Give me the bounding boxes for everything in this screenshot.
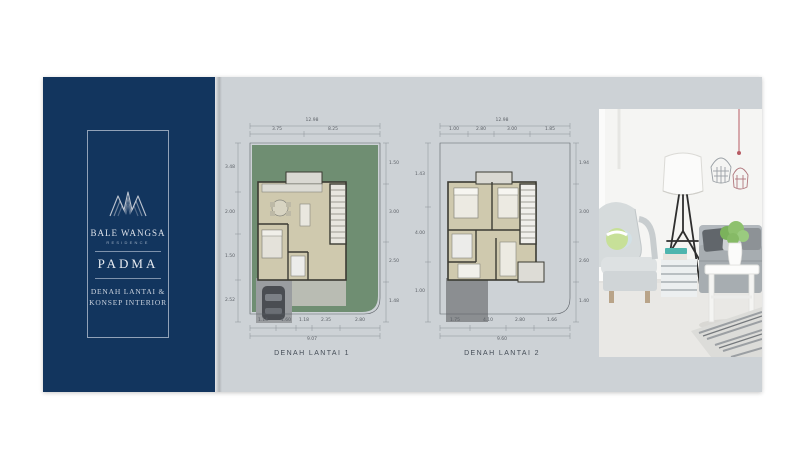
floor-plan-1-title: DENAH LANTAI 1 — [228, 350, 396, 357]
floor-plan-2-title: DENAH LANTAI 2 — [418, 350, 586, 357]
dimension-label: 1.40 — [579, 300, 593, 305]
crown-monogram-icon — [105, 189, 151, 224]
dimension-label: 1.43 — [412, 173, 425, 178]
brochure-card: BALE WANGSA RESIDENCE PADMA DENAH LANTAI… — [43, 77, 762, 392]
dimension-label: 1.75 — [445, 319, 465, 324]
dimension-label: 9.60 — [418, 338, 586, 343]
tagline-line2: KONSEP INTERIOR — [89, 298, 167, 307]
dimension-label: 2.80 — [350, 319, 370, 324]
fold-crease — [215, 77, 222, 392]
floor-plan-1: 12.98 3.75 8.25 3.48 2.00 1.50 2.52 1.50… — [228, 112, 396, 362]
dimension-label: 12.98 — [418, 119, 586, 124]
floor-plan-1-drawing — [228, 112, 396, 362]
dimension-label: 1.50 — [222, 255, 235, 260]
dimension-label: 4.10 — [478, 319, 498, 324]
dimension-label: 1.94 — [579, 162, 593, 167]
brand-frame: BALE WANGSA RESIDENCE PADMA DENAH LANTAI… — [87, 130, 169, 338]
brand-name: BALE WANGSA — [90, 228, 165, 238]
dimension-label: 1.14 — [253, 319, 273, 324]
dimension-label: 3.00 — [579, 211, 593, 216]
interior-concept-photo — [599, 109, 762, 357]
divider-line — [95, 278, 161, 279]
product-name: PADMA — [98, 256, 159, 272]
dimension-label: 2.60 — [579, 260, 593, 265]
dimension-label: 3.00 — [502, 128, 522, 133]
dimension-label: 2.00 — [222, 211, 235, 216]
dimension-label: 1.50 — [389, 162, 403, 167]
dimension-label: 4.00 — [412, 232, 425, 237]
dimension-label: 2.80 — [510, 319, 530, 324]
dimension-label: 2.52 — [222, 299, 235, 304]
dimension-label: 2.80 — [471, 128, 491, 133]
dimension-label: 1.00 — [444, 128, 464, 133]
dimension-label: 1.85 — [540, 128, 560, 133]
divider-line — [95, 251, 161, 252]
dimension-label: 8.25 — [313, 128, 353, 133]
dimension-label: 1.00 — [412, 290, 425, 295]
floor-plan-2: 12.98 1.00 2.80 3.00 1.85 1.43 4.00 1.00… — [418, 112, 586, 362]
dimension-label: 9.07 — [228, 338, 396, 343]
dimension-label: 3.48 — [222, 166, 235, 171]
dimension-label: 2.50 — [389, 260, 403, 265]
tagline-line1: DENAH LANTAI & — [91, 287, 165, 296]
dimension-label: 1.66 — [542, 319, 562, 324]
dimension-label: 2.35 — [316, 319, 336, 324]
dimension-label: 1.48 — [389, 300, 403, 305]
brand-subtitle: RESIDENCE — [106, 240, 149, 245]
brand-panel: BALE WANGSA RESIDENCE PADMA DENAH LANTAI… — [43, 77, 215, 392]
dimension-label: 3.75 — [257, 128, 297, 133]
tagline: DENAH LANTAI & KONSEP INTERIOR — [89, 286, 167, 309]
floor-plan-2-drawing — [418, 112, 586, 362]
living-room-illustration — [599, 109, 762, 357]
dimension-label: 1.18 — [294, 319, 314, 324]
dimension-label: 1.60 — [276, 319, 296, 324]
dimension-label: 12.98 — [228, 119, 396, 124]
brochure-page: BALE WANGSA RESIDENCE PADMA DENAH LANTAI… — [0, 0, 804, 471]
dimension-label: 3.00 — [389, 211, 403, 216]
